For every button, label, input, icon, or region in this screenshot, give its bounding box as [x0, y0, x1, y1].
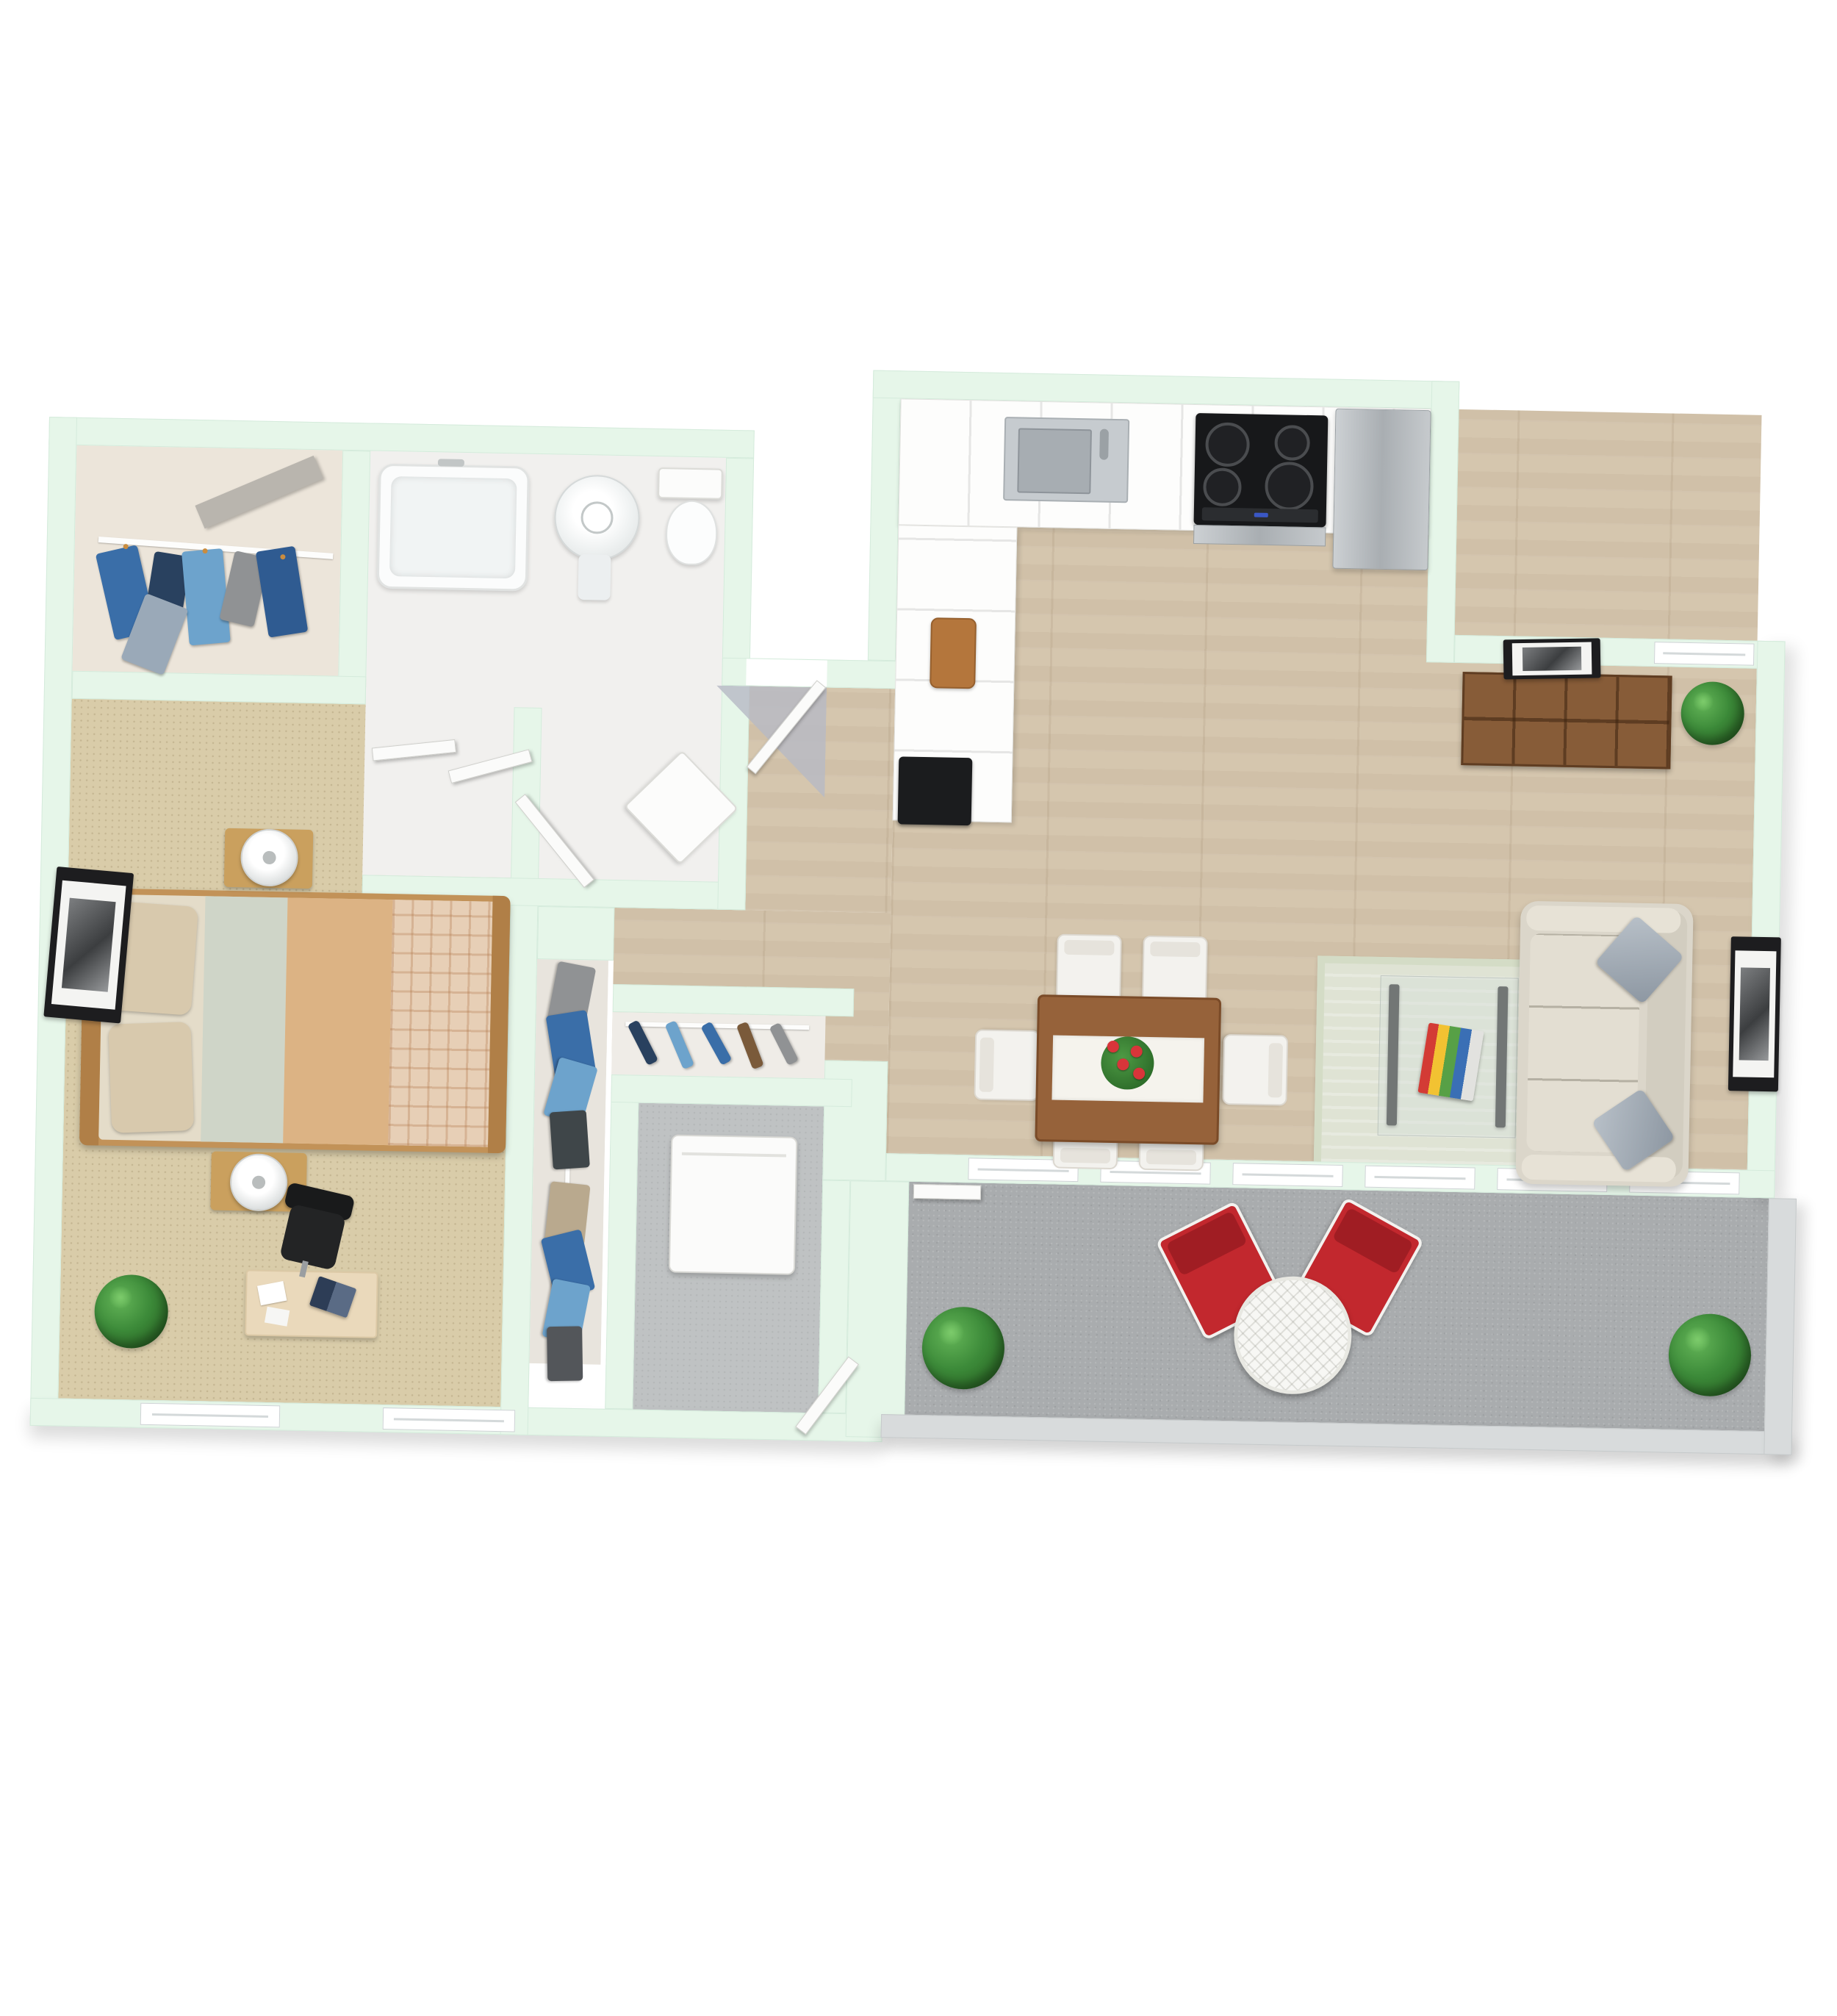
- burner: [1265, 462, 1314, 511]
- dining-chair: [1222, 1034, 1288, 1106]
- shelving-unit: [1461, 672, 1672, 769]
- floor-plan: [29, 354, 1813, 1468]
- flower: [1133, 1068, 1145, 1080]
- balcony-door: [913, 1184, 981, 1200]
- burner: [1203, 467, 1242, 506]
- top-wall-art: [1503, 638, 1601, 679]
- wall-step: [1426, 381, 1459, 663]
- hanging-clothes: [550, 1110, 590, 1169]
- wall-wardrobe-north: [537, 906, 614, 961]
- flower: [1117, 1058, 1129, 1070]
- bed-pillow: [108, 1022, 194, 1133]
- bed-sheet: [201, 896, 287, 1143]
- floor-plan-stage: [0, 0, 1837, 2016]
- dining-chair: [974, 1029, 1040, 1101]
- hanger-hook: [123, 544, 129, 549]
- balcony-window-3: [1232, 1163, 1343, 1187]
- sofa-armrest: [1526, 905, 1681, 933]
- living-top-window: [1654, 642, 1755, 666]
- cooktop: [1193, 413, 1328, 527]
- bedroom-window-1: [140, 1403, 281, 1428]
- double-bed: [79, 888, 511, 1153]
- kitchen-faucet: [1099, 429, 1109, 460]
- sink-pedestal: [578, 554, 611, 600]
- balcony-parapet-east: [1764, 1198, 1797, 1455]
- burner: [1274, 425, 1310, 461]
- refrigerator: [1332, 409, 1431, 570]
- sofa: [1515, 901, 1693, 1187]
- bedroom-window-2: [383, 1407, 516, 1432]
- kitchen-sink: [1003, 417, 1129, 503]
- wall-closet-bath-divider: [338, 451, 371, 705]
- washing-machine: [669, 1135, 798, 1275]
- bed-throw-plaid: [388, 900, 492, 1147]
- cooktop-controls: [1201, 507, 1318, 523]
- bedroom-wall-art: [43, 867, 134, 1024]
- burner: [1205, 422, 1250, 467]
- wall-coat-closet-bottom: [611, 1075, 852, 1107]
- art-photo: [62, 898, 116, 992]
- bathtub-basin: [389, 476, 517, 578]
- art-photo: [1523, 647, 1581, 672]
- chair-seat: [279, 1204, 346, 1271]
- hanging-clothes: [547, 1326, 583, 1381]
- sofa-armrest: [1521, 1155, 1676, 1183]
- cooktop-front-panel: [1193, 525, 1326, 546]
- sink-basin: [1017, 428, 1092, 495]
- toilet-bowl: [665, 500, 718, 565]
- hanger-hook: [280, 554, 285, 559]
- art-photo: [1739, 967, 1770, 1061]
- cutting-board: [930, 617, 977, 689]
- wall-closet-south: [72, 671, 367, 705]
- flower: [1131, 1045, 1143, 1057]
- kitchen-black-appliance: [898, 756, 973, 825]
- living-wall-art: [1728, 936, 1781, 1091]
- bathtub: [377, 464, 530, 592]
- bathtub-faucet: [438, 459, 464, 467]
- wall-balcony-west: [846, 1180, 910, 1438]
- balcony-window-4: [1365, 1166, 1475, 1190]
- wall-coat-closet-top: [613, 984, 855, 1016]
- toilet-tank: [658, 467, 723, 500]
- flower: [1107, 1041, 1119, 1052]
- hanging-clothes: [181, 548, 231, 645]
- book-stack: [1417, 1022, 1484, 1101]
